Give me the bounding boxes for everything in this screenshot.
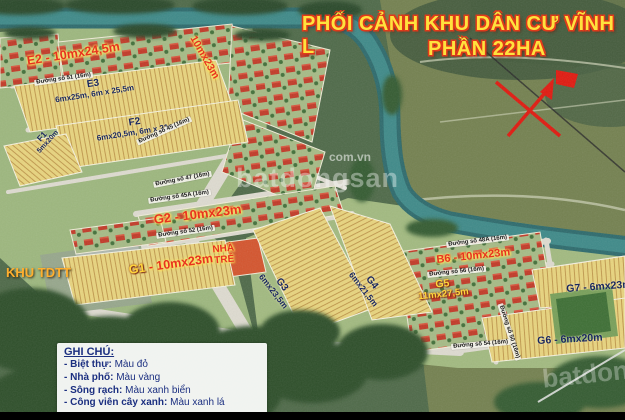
masterplan-render: E2 - 10mx24,5m 10mx23m Đường số 51 (16m)… xyxy=(0,0,625,420)
legend-value: Màu xanh lá xyxy=(170,397,224,408)
sports-zone-label: KHU TDTT xyxy=(6,266,71,280)
legend-box: GHI CHÚ: - Biệt thự: Màu đỏ - Nhà phố: M… xyxy=(57,343,267,414)
legend-term: - Nhà phố: xyxy=(64,372,113,383)
legend-item-river: - Sông rạch: Màu xanh biển xyxy=(64,385,260,398)
legend-item-villa: - Biệt thự: Màu đỏ xyxy=(64,359,260,372)
legend-term: - Sông rạch: xyxy=(64,385,122,396)
legend-term: - Biệt thự: xyxy=(64,359,112,370)
legend-heading: GHI CHÚ: xyxy=(64,345,260,359)
legend-value: Màu vàng xyxy=(116,372,160,383)
legend-value: Màu xanh biển xyxy=(125,385,191,396)
legend-term: - Công viên cây xanh: xyxy=(64,397,167,408)
page-title-line2: PHẦN 22HA xyxy=(428,38,546,61)
legend-item-townhouse: - Nhà phố: Màu vàng xyxy=(64,372,260,385)
block-g1-name: G1 xyxy=(128,261,146,277)
legend-value: Màu đỏ xyxy=(115,359,148,370)
bottom-black-bar xyxy=(0,412,625,420)
legend-item-park: - Công viên cây xanh: Màu xanh lá xyxy=(64,397,260,410)
